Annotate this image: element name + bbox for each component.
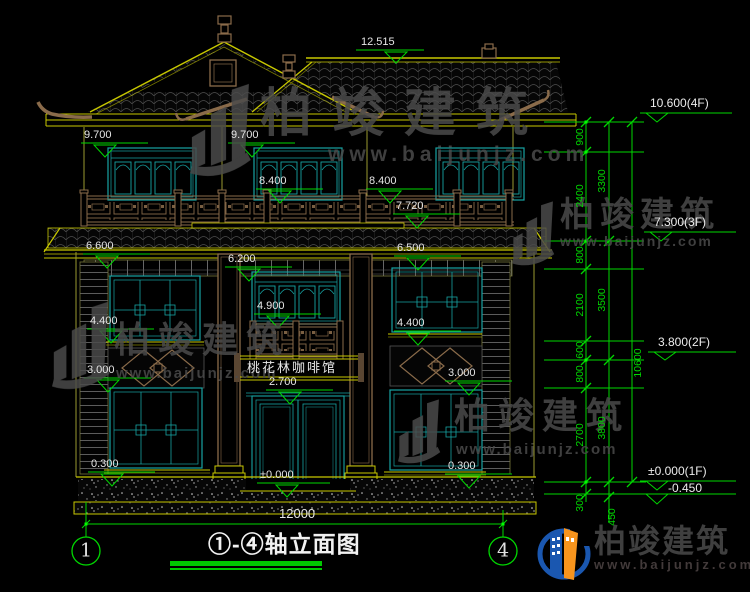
level-mark-6500: 6.500 [397,243,425,254]
chain-dim-800b: 800 [575,365,586,383]
level-mark-0300-left: 0.300 [91,459,119,470]
chain-dim-300: 300 [575,494,586,512]
title-underline-thick [170,561,322,566]
level-mark-2700: 2.700 [269,377,297,388]
title-underline-thin [170,568,322,570]
axis-bubble-4: 4 [497,542,509,561]
logo-url-text: www.baijunjz.com [594,558,750,571]
watermark-brand: 柏竣建筑 [114,322,290,358]
chain-dim-3500: 3500 [597,288,608,311]
level-mark-7720: 7.720 [396,201,424,212]
logo-brand-text: 柏竣建筑 [594,525,730,557]
chain-dim-2100: 2100 [575,293,586,316]
level-mark-9700-left: 9.700 [84,130,112,141]
chain-dim-800a: 800 [575,246,586,264]
balcony-railing [80,190,514,226]
watermark-mark-icon [398,399,440,463]
elevation-drawing-canvas: 柏竣建筑 www.baijunjz.com 柏竣建筑 www.baijunjz.… [0,0,750,592]
shop-sign-text: 桃花林咖啡馆 [247,361,337,374]
level-mark-0300-right: 0.300 [448,461,476,472]
chain-dim-10600: 10600 [633,348,644,377]
floor-level-1f: ±0.000(1F) [648,465,707,477]
watermark-url: www.baijunjz.com [328,144,589,165]
level-mark-4900: 4.900 [257,301,285,312]
level-mark-6200: 6.200 [228,254,256,265]
floor-level-4f: 10.600(4F) [650,97,709,109]
level-mark-3000-right: 3.000 [448,368,476,379]
baijun-logo-mark [540,524,596,580]
lower-roof [44,223,552,258]
overall-width-dim: 12000 [279,507,315,520]
floor-level-3f: 7.300(3F) [654,216,706,228]
level-mark-4400-right: 4.400 [397,318,425,329]
level-mark-9700-center: 9.700 [231,130,259,141]
floor-level-2f: 3.800(2F) [658,336,710,348]
level-mark-ridge: 12.515 [361,37,395,48]
level-mark-4400-left: 4.400 [90,316,118,327]
watermark-brand: 柏竣建筑 [260,88,548,140]
level-mark-zero: ±0.000 [260,470,294,481]
chain-dim-2700: 2700 [575,423,586,446]
watermark-url: www.baijunjz.com [456,442,617,457]
level-mark-8400-left: 8.400 [259,176,287,187]
floor-level-minus: -0.450 [668,482,702,494]
chain-dim-3300: 3300 [597,169,608,192]
level-mark-3000-left: 3.000 [87,365,115,376]
chain-dim-3800: 3800 [597,416,608,439]
chain-dim-900: 900 [575,128,586,146]
drawing-title: ①-④轴立面图 [208,533,361,556]
chain-dim-600: 600 [575,341,586,359]
level-mark-6600: 6.600 [86,241,114,252]
level-mark-8400-right: 8.400 [369,176,397,187]
chain-dim-2400: 2400 [575,184,586,207]
axis-bubble-1: 1 [80,542,92,561]
